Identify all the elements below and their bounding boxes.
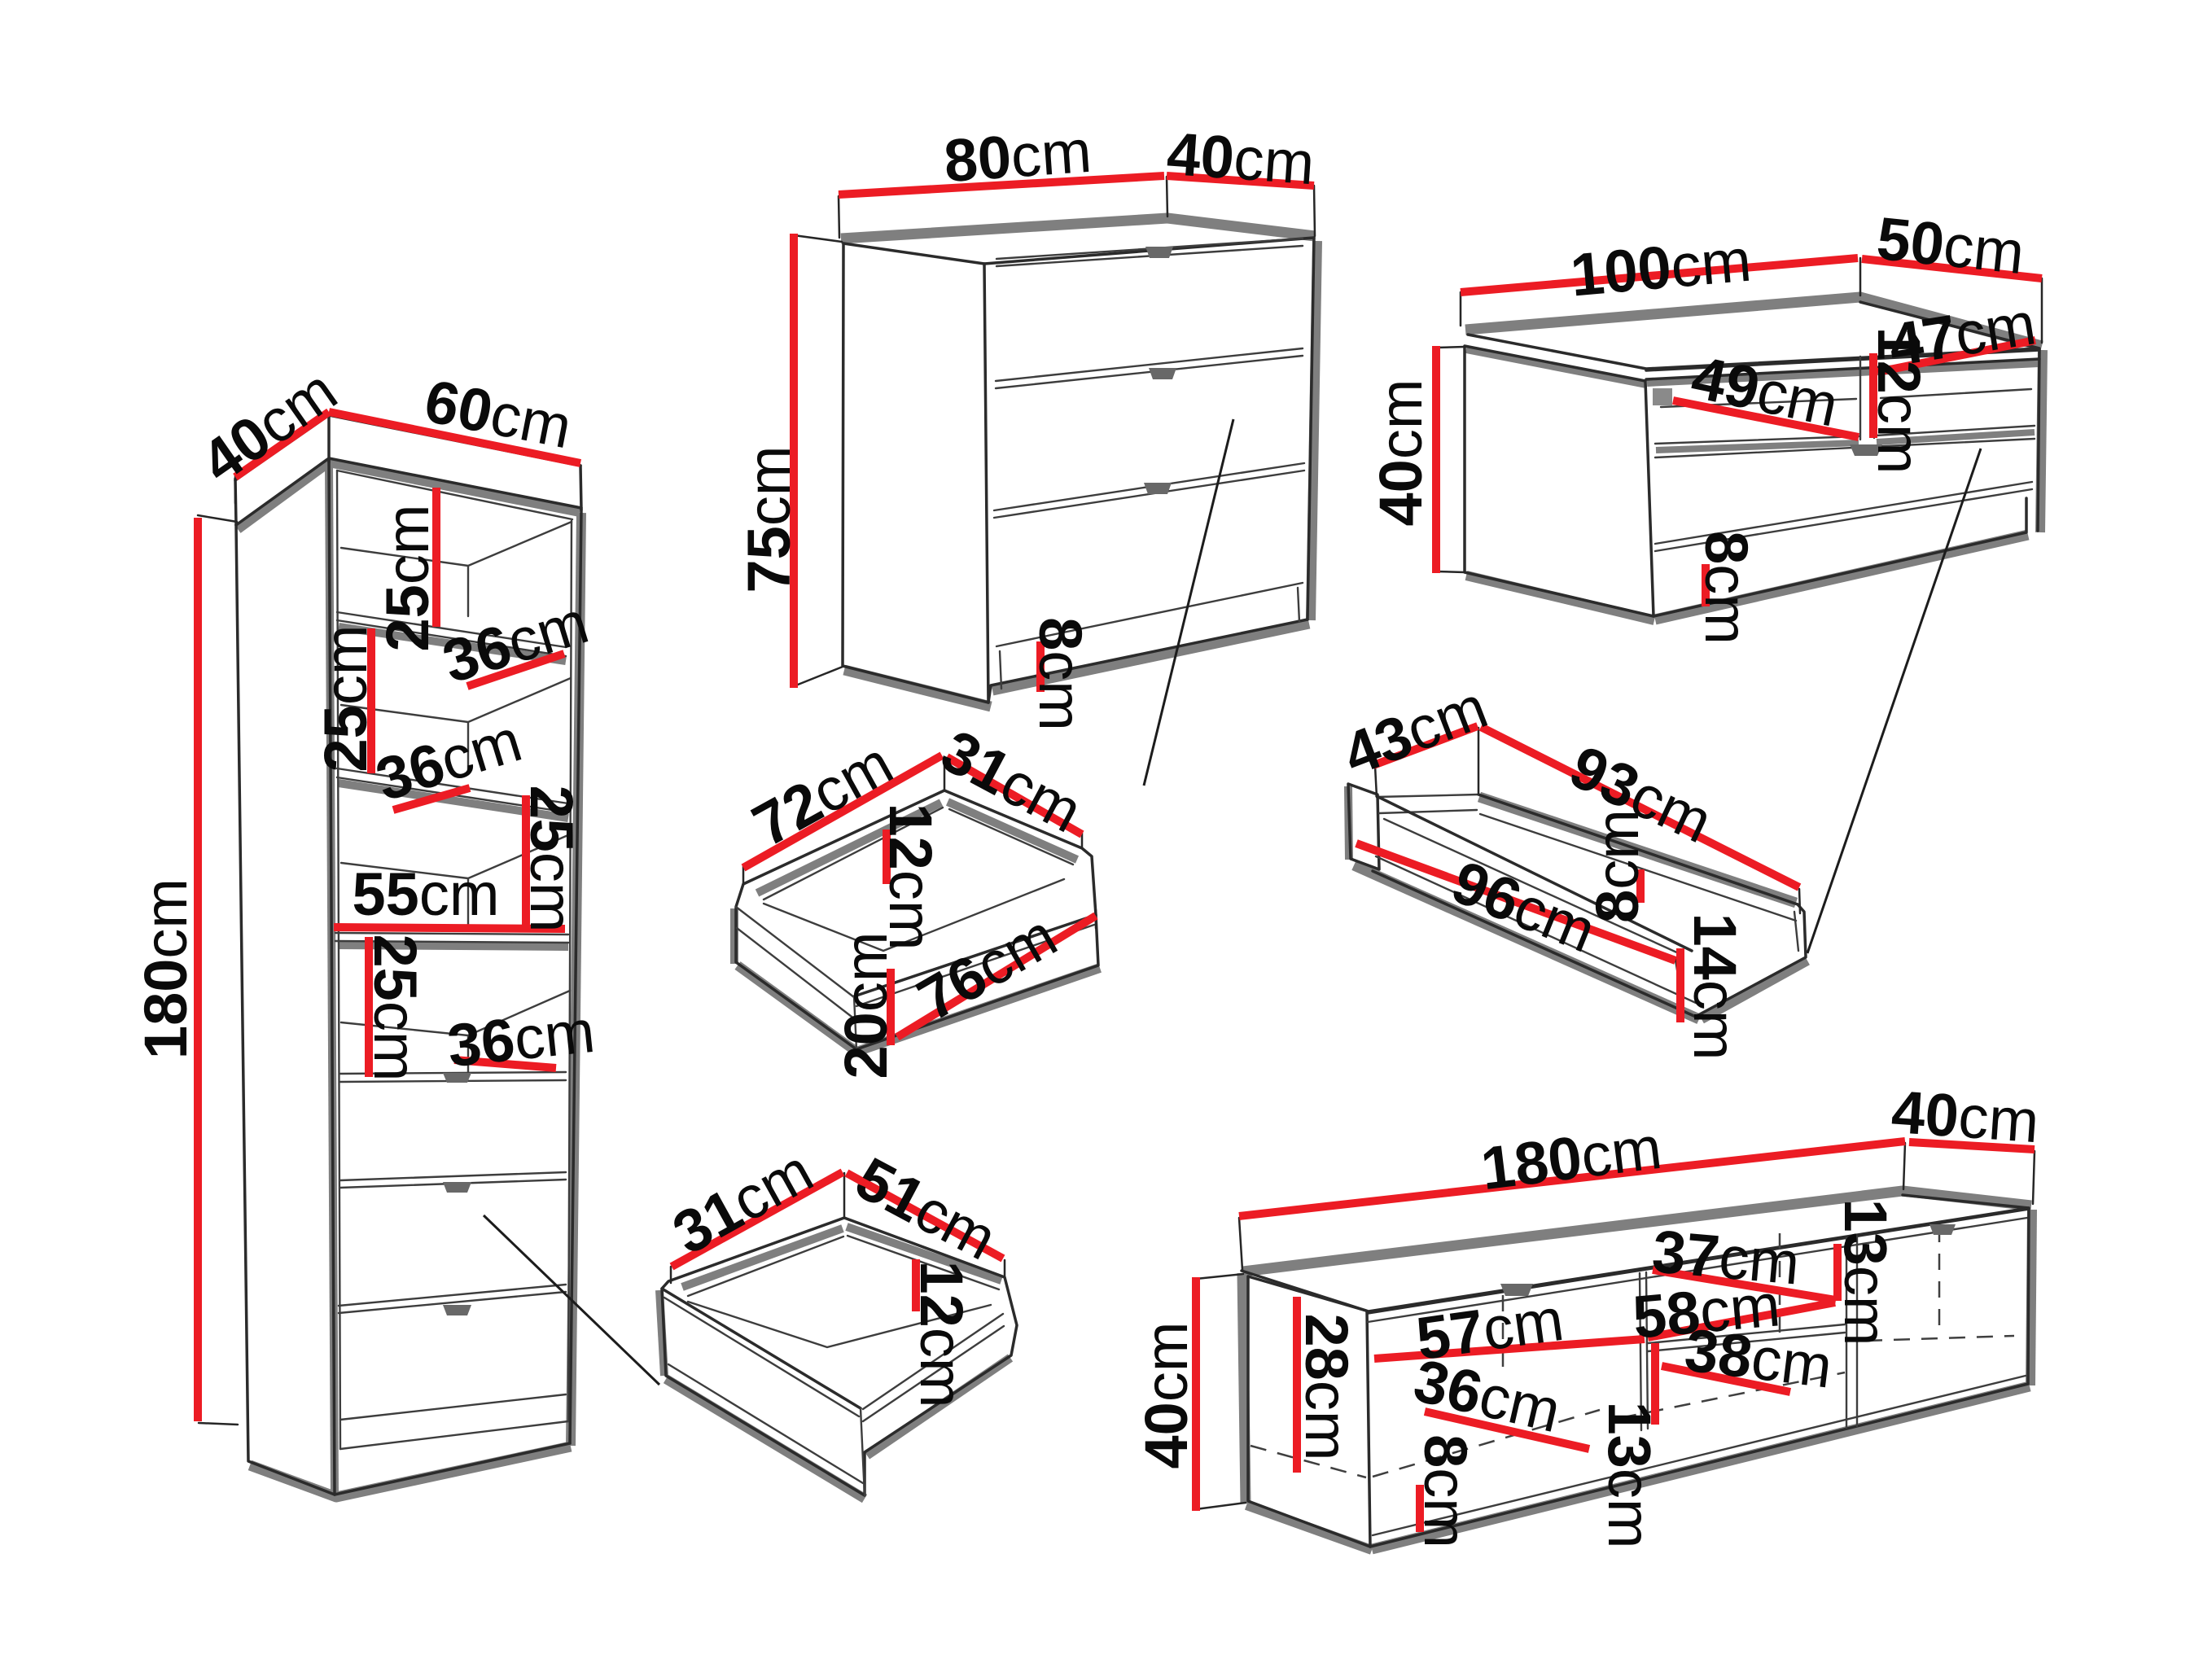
svg-text:28cm: 28cm: [1293, 1314, 1360, 1461]
svg-text:8cm: 8cm: [1693, 531, 1760, 645]
svg-text:12cm: 12cm: [877, 803, 944, 951]
svg-text:25cm: 25cm: [518, 786, 585, 933]
svg-text:37cm: 37cm: [1649, 1217, 1802, 1297]
svg-text:12cm: 12cm: [908, 1261, 975, 1408]
svg-text:55cm: 55cm: [353, 860, 500, 928]
svg-text:75cm: 75cm: [735, 446, 803, 593]
svg-text:25cm: 25cm: [361, 935, 429, 1082]
svg-text:40cm: 40cm: [1890, 1078, 2041, 1155]
svg-text:180cm: 180cm: [132, 878, 199, 1059]
svg-text:8cm: 8cm: [1412, 1434, 1479, 1548]
svg-text:13cm: 13cm: [1596, 1402, 1663, 1549]
svg-text:20cm: 20cm: [832, 932, 900, 1079]
svg-text:8cm: 8cm: [1583, 809, 1651, 923]
svg-text:14cm: 14cm: [1681, 913, 1749, 1061]
svg-text:13cm: 13cm: [1832, 1199, 1899, 1346]
svg-text:80cm: 80cm: [942, 117, 1093, 195]
svg-text:40cm: 40cm: [1132, 1322, 1200, 1469]
svg-text:40cm: 40cm: [1367, 379, 1435, 527]
svg-text:12cm: 12cm: [1865, 327, 1933, 475]
svg-text:25cm: 25cm: [374, 505, 441, 652]
svg-text:40cm: 40cm: [1165, 120, 1316, 197]
svg-text:8cm: 8cm: [1027, 617, 1094, 731]
